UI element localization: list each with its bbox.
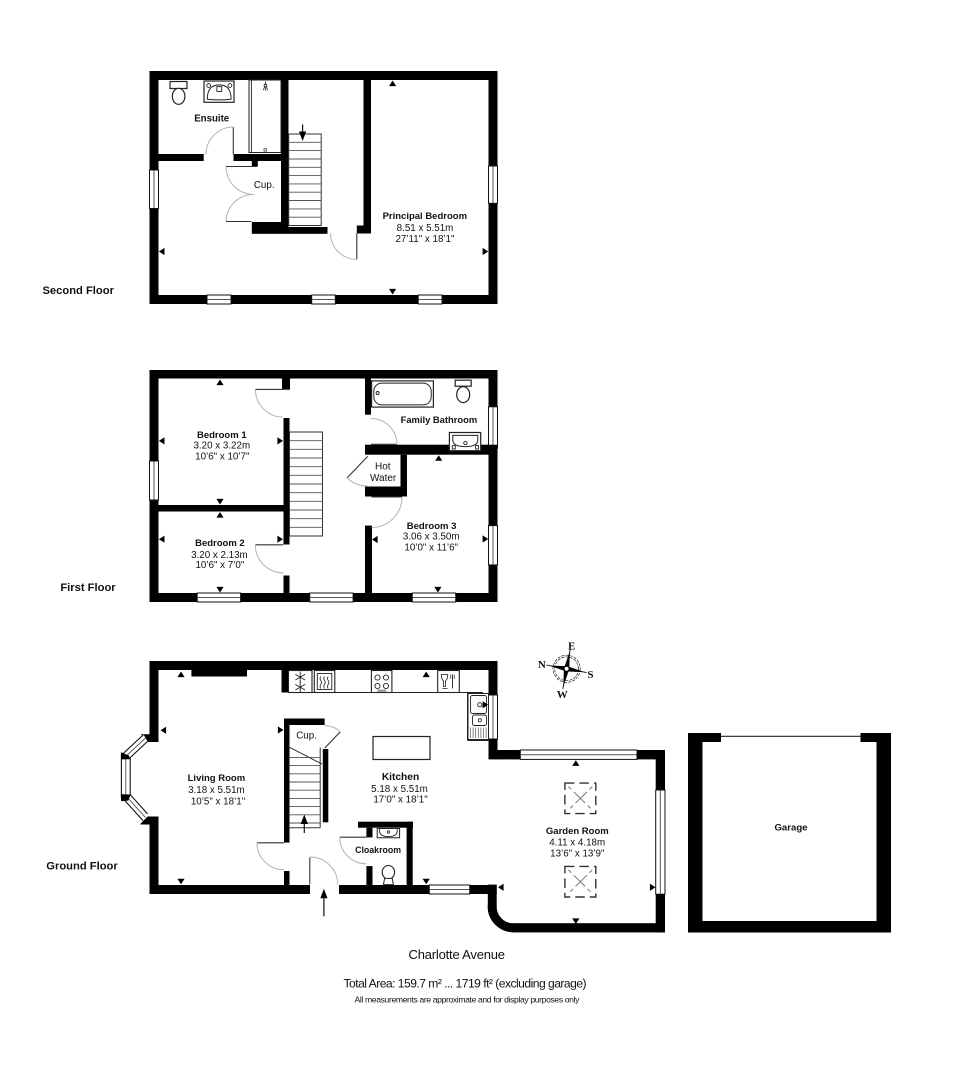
svg-text:10’6" x 7’0": 10’6" x 7’0" bbox=[195, 560, 244, 571]
svg-text:10’6" x 10’7": 10’6" x 10’7" bbox=[195, 451, 250, 462]
svg-text:Ensuite: Ensuite bbox=[194, 114, 230, 125]
svg-text:13’6" x 13’9": 13’6" x 13’9" bbox=[550, 849, 605, 860]
svg-text:First Floor: First Floor bbox=[60, 582, 116, 594]
svg-text:E: E bbox=[568, 641, 575, 653]
svg-text:Cloakroom: Cloakroom bbox=[355, 845, 401, 855]
svg-text:4.11 x 4.18m: 4.11 x 4.18m bbox=[549, 838, 605, 849]
svg-text:3.20 x 3.22m: 3.20 x 3.22m bbox=[193, 441, 250, 452]
svg-text:Ground Floor: Ground Floor bbox=[46, 861, 118, 873]
svg-text:Total Area: 159.7 m² ... 1719: Total Area: 159.7 m² ... 1719 ft² (exclu… bbox=[344, 976, 587, 990]
svg-text:3.06 x 3.50m: 3.06 x 3.50m bbox=[403, 531, 460, 542]
svg-text:All measurements are approxima: All measurements are approximate and for… bbox=[355, 995, 581, 1005]
svg-text:N: N bbox=[538, 659, 546, 671]
svg-text:Garage: Garage bbox=[774, 822, 807, 833]
svg-text:Water: Water bbox=[370, 473, 397, 484]
svg-text:Cup.: Cup. bbox=[254, 180, 275, 191]
svg-text:W: W bbox=[557, 689, 568, 701]
svg-text:Charlotte Avenue: Charlotte Avenue bbox=[409, 947, 505, 962]
svg-text:Garden Room: Garden Room bbox=[546, 826, 609, 837]
svg-text:Second Floor: Second Floor bbox=[42, 285, 114, 297]
svg-text:Principal Bedroom: Principal Bedroom bbox=[383, 211, 467, 222]
svg-text:Kitchen: Kitchen bbox=[382, 772, 419, 783]
svg-text:Hot: Hot bbox=[375, 461, 391, 472]
svg-text:Living Room: Living Room bbox=[188, 773, 246, 784]
svg-text:5.18 x 5.51m: 5.18 x 5.51m bbox=[371, 784, 428, 795]
svg-text:10’0" x 11’6": 10’0" x 11’6" bbox=[404, 543, 458, 554]
svg-text:8.51 x 5.51m: 8.51 x 5.51m bbox=[397, 223, 454, 234]
svg-text:Cup.: Cup. bbox=[296, 731, 317, 742]
svg-text:S: S bbox=[587, 669, 593, 681]
svg-text:Bedroom 2: Bedroom 2 bbox=[195, 538, 245, 549]
svg-text:17’0" x 18’1": 17’0" x 18’1" bbox=[373, 795, 428, 806]
svg-text:3.18 x 5.51m: 3.18 x 5.51m bbox=[188, 785, 245, 796]
svg-text:27’11" x 18’1": 27’11" x 18’1" bbox=[395, 234, 455, 245]
svg-text:Family Bathroom: Family Bathroom bbox=[401, 414, 478, 425]
svg-text:Bedroom 1: Bedroom 1 bbox=[197, 430, 247, 441]
svg-text:10’5" x 18’1": 10’5" x 18’1" bbox=[191, 797, 246, 808]
